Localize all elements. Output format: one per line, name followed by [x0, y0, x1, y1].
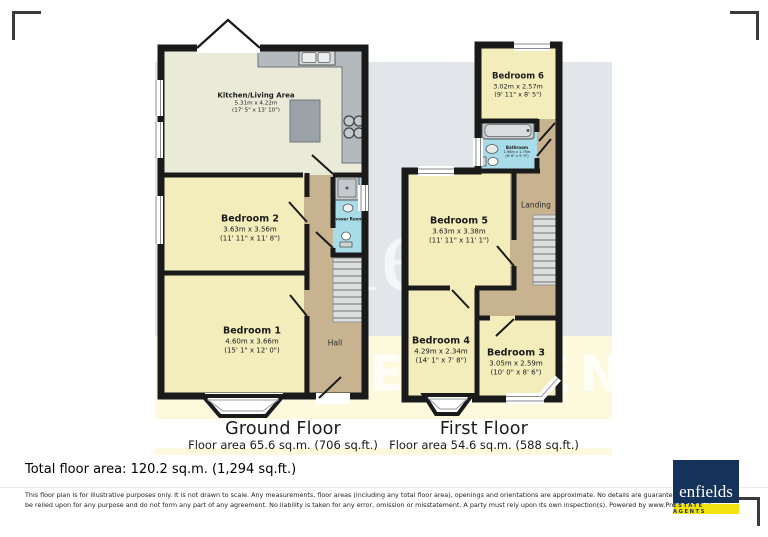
ground-floor-area: Floor area 65.6 sq.m. (706 sq.ft.) — [188, 438, 378, 452]
kitchen-double-door — [197, 20, 260, 53]
first-floor-area: Floor area 54.6 sq.m. (588 sq.ft.) — [389, 438, 579, 452]
room-label-bedroom-3: Bedroom 3 3.05m x 2.59m (10' 0" x 8' 6") — [487, 347, 545, 376]
room-dim-metric: 3.63m x 3.56m — [220, 225, 280, 234]
floor-plan-drawing — [0, 0, 768, 537]
room-dim-imperial: (10' 0" x 8' 6") — [487, 368, 545, 377]
room-dim-imperial: (9' 11" x 8' 5") — [492, 90, 544, 98]
shower-room-toilet — [342, 232, 351, 240]
room-label-bedroom-1: Bedroom 1 4.60m x 3.66m (15' 1" x 12' 0"… — [223, 325, 281, 354]
sink-bowl — [302, 53, 316, 63]
room-name: Bedroom 4 — [412, 335, 470, 347]
room-name: Bedroom 2 — [220, 213, 280, 225]
divider-line — [0, 487, 768, 488]
room-dim-imperial: (17' 5" x 13' 10") — [217, 107, 294, 114]
first-floor-stairs — [533, 215, 557, 285]
ground-floor-title: Ground Floor — [225, 419, 341, 439]
room-dim-metric: 3.02m x 2.57m — [492, 82, 544, 90]
bedroom-4-bay-window — [424, 393, 472, 414]
room-dim-imperial: (11' 11" x 11' 8") — [220, 234, 280, 243]
first-floor-title: First Floor — [440, 419, 528, 439]
room-label-bathroom: Bathroom 1.98m x 1.75m (6' 6" x 5' 9") — [504, 145, 531, 159]
logo-navy-box: enfields — [673, 460, 739, 503]
room-dim-imperial: (6' 6" x 5' 9") — [504, 155, 531, 159]
room-label-landing: Landing — [521, 200, 551, 209]
room-dim-metric: 4.60m x 3.66m — [223, 337, 281, 346]
shower-drain — [346, 187, 349, 190]
room-name: Shower Room — [332, 217, 363, 222]
room-label-shower-room: Shower Room — [332, 217, 363, 222]
floorplan-page: enfields ESTATE AGENTS — [0, 0, 768, 537]
room-label-bedroom-4: Bedroom 4 4.29m x 2.34m (14' 1" x 7' 8") — [412, 335, 470, 364]
disclaimer-text: This floor plan is for illustrative purp… — [25, 491, 725, 511]
total-floor-area: Total floor area: 120.2 sq.m. (1,294 sq.… — [25, 462, 296, 477]
room-dim-imperial: (11' 11" x 11' 1") — [429, 236, 489, 245]
room-dim-metric: 4.29m x 2.34m — [412, 347, 470, 356]
room-label-bedroom-5: Bedroom 5 3.63m x 3.38m (11' 11" x 11' 1… — [429, 215, 489, 244]
room-name: Landing — [521, 200, 551, 209]
logo-wordmark: enfields — [679, 483, 733, 503]
bedroom-1-bay-window — [203, 393, 283, 416]
room-name: Bedroom 1 — [223, 325, 281, 337]
room-name: Bedroom 6 — [492, 72, 544, 83]
ground-floor-stairs — [333, 258, 362, 322]
room-label-kitchen-living: Kitchen/Living Area 5.31m x 4.22m (17' 5… — [217, 92, 294, 115]
room-dim-metric: 3.05m x 2.59m — [487, 359, 545, 368]
toilet-cistern — [340, 242, 352, 247]
enfields-logo: enfields ESTATE AGENTS — [673, 460, 739, 514]
room-name: Bedroom 3 — [487, 347, 545, 359]
room-name: Bedroom 5 — [429, 215, 489, 227]
room-dim-imperial: (14' 1" x 7' 8") — [412, 356, 470, 365]
room-dim-metric: 5.31m x 4.22m — [217, 100, 294, 107]
logo-tagline: ESTATE AGENTS — [673, 504, 739, 514]
sink-drainer — [318, 53, 330, 63]
room-dim-metric: 3.63m x 3.38m — [429, 227, 489, 236]
room-name: Kitchen/Living Area — [217, 92, 294, 101]
room-label-bedroom-6: Bedroom 6 3.02m x 2.57m (9' 11" x 8' 5") — [492, 72, 544, 99]
landing-corridor — [475, 288, 559, 320]
room-label-hall: Hall — [328, 338, 342, 347]
shower-room-basin — [343, 204, 353, 212]
room-label-bedroom-2: Bedroom 2 3.63m x 3.56m (11' 11" x 11' 8… — [220, 213, 280, 242]
room-name: Hall — [328, 338, 342, 347]
room-dim-imperial: (15' 1" x 12' 0") — [223, 346, 281, 355]
